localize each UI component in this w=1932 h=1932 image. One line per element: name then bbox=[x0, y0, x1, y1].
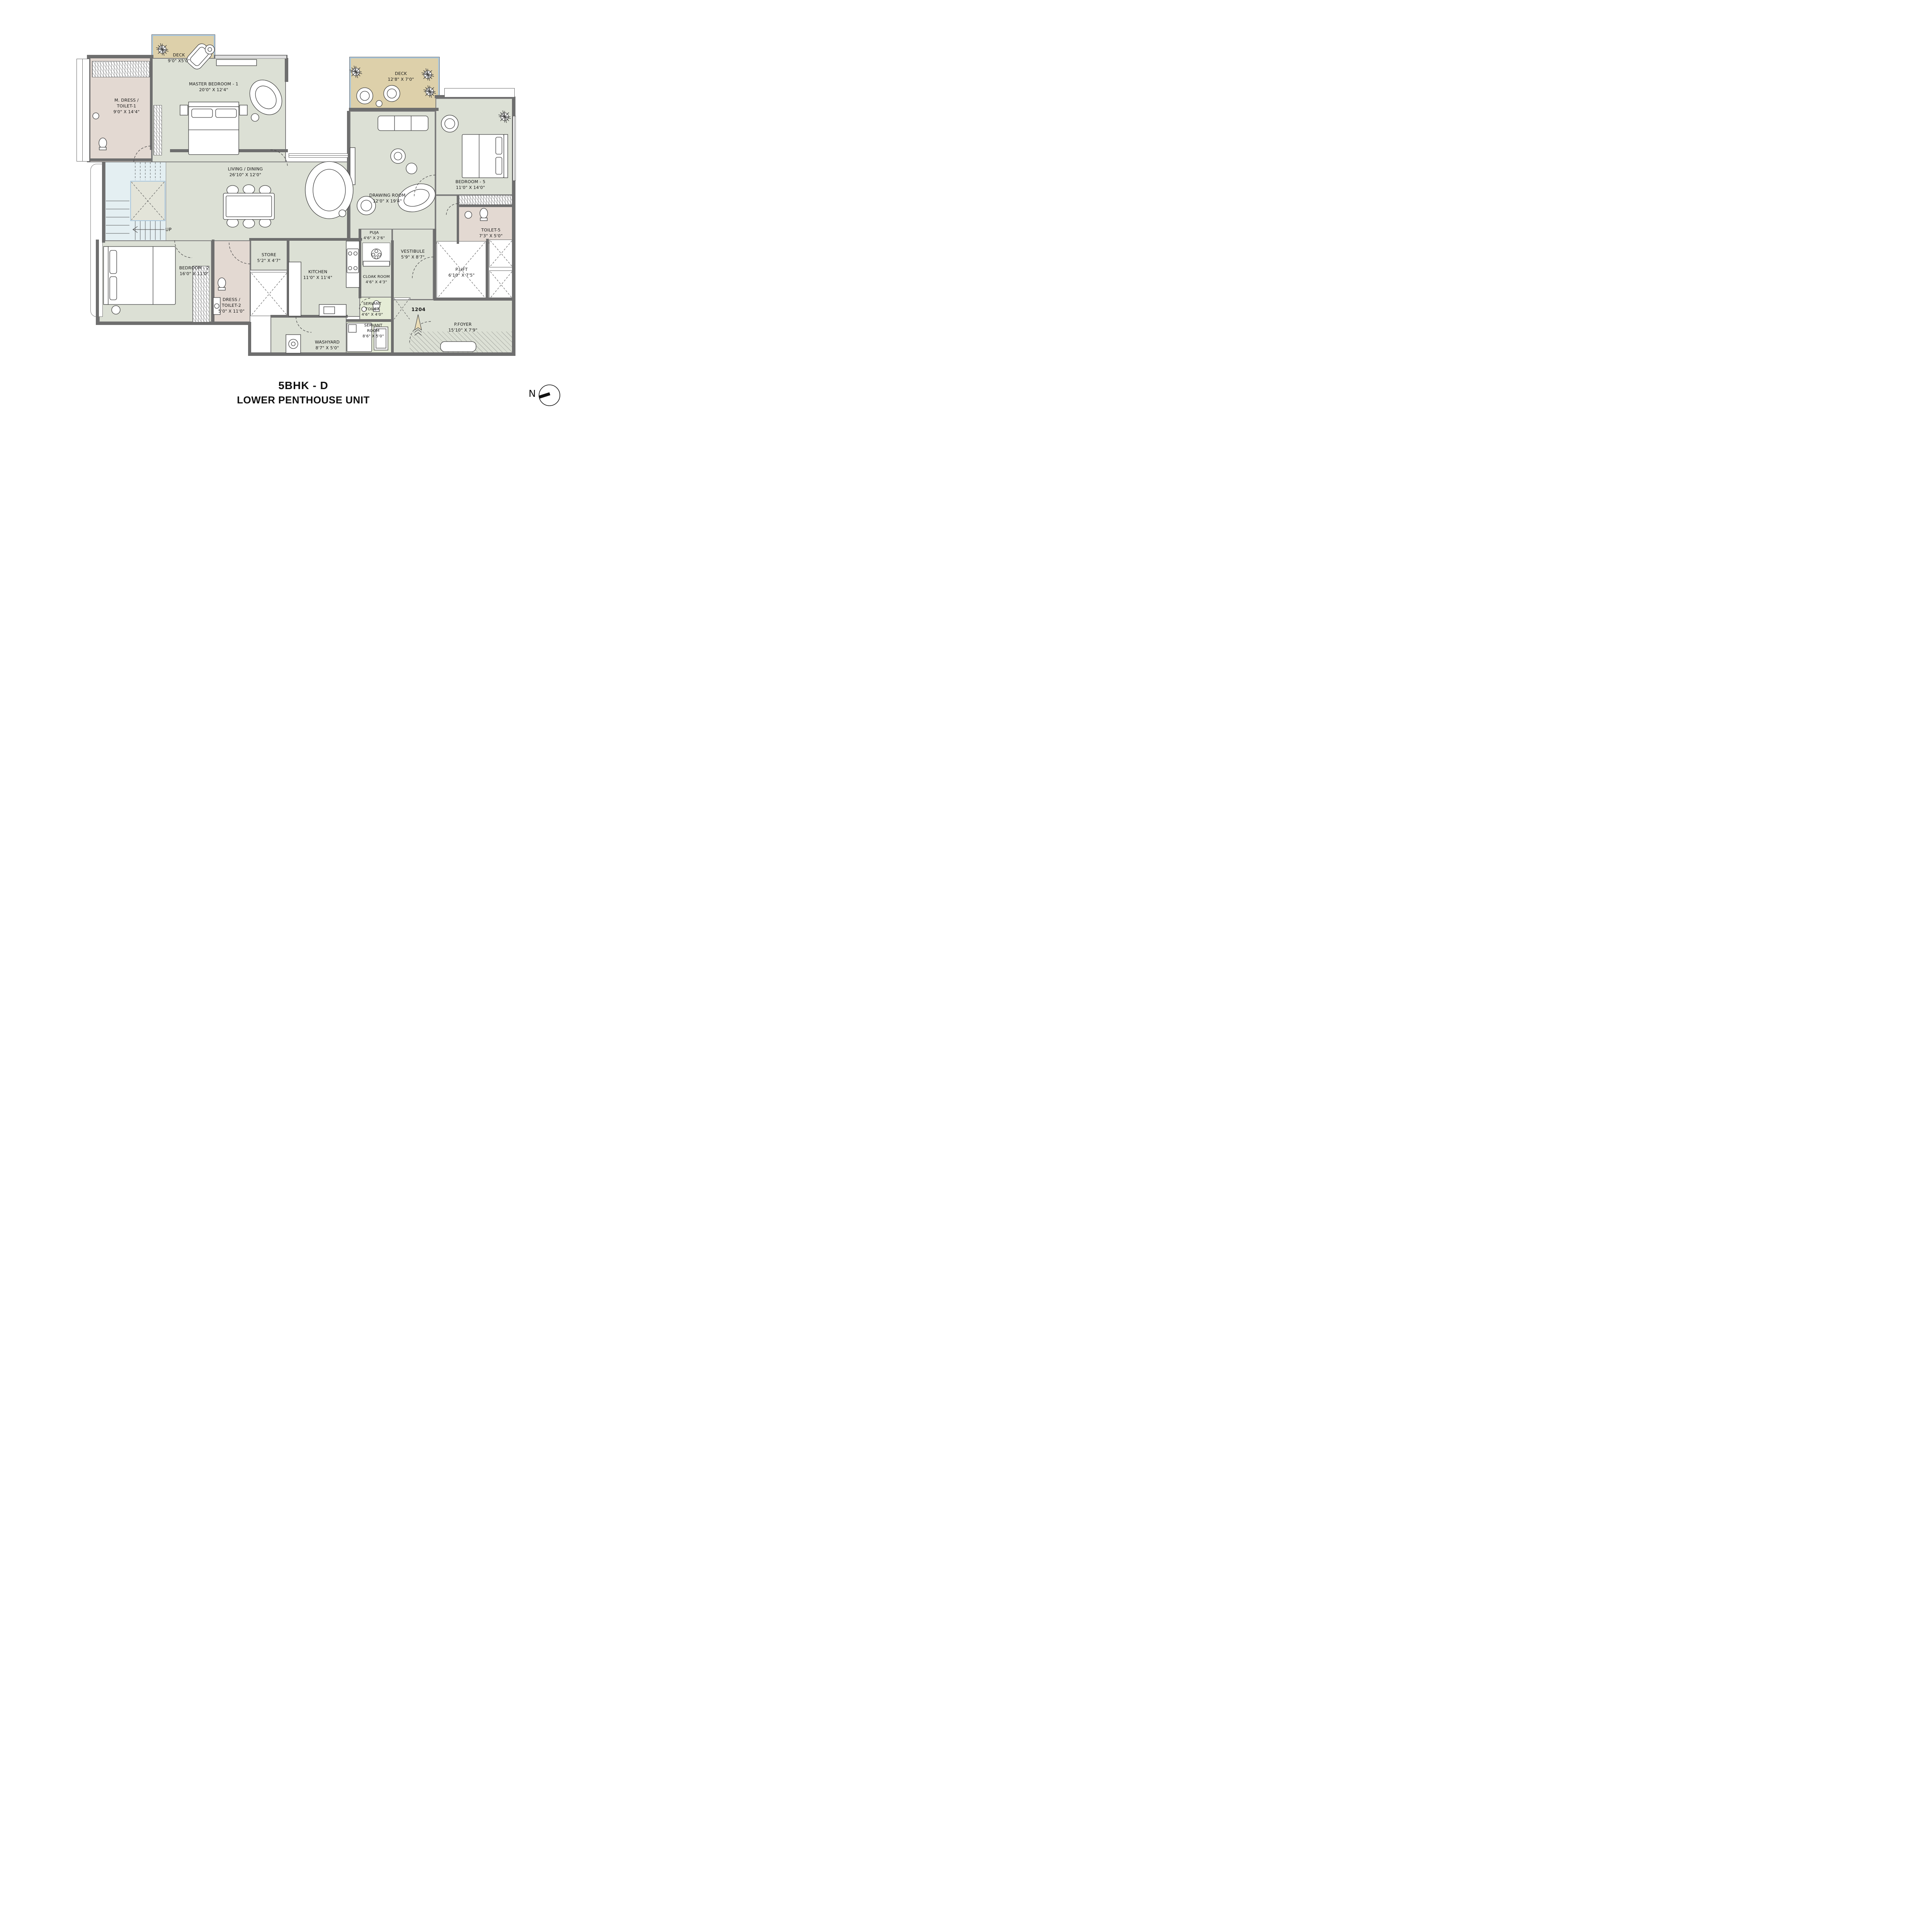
wall-segment bbox=[486, 239, 489, 300]
label-deck-2: DECK 12'8" X 7'0" bbox=[369, 71, 433, 82]
wall-segment bbox=[347, 111, 350, 240]
wall-segment bbox=[249, 238, 362, 241]
room-dims: 8'7" X 5'0" bbox=[303, 345, 352, 351]
room-name: TOILET-2 bbox=[210, 303, 253, 308]
wall-segment bbox=[457, 195, 459, 244]
room-name: TOILET bbox=[354, 307, 391, 312]
room-dims: 4'6" X 2'6" bbox=[358, 236, 391, 241]
up-text: UP bbox=[165, 227, 181, 233]
room-dims: 16'0" X 11'0" bbox=[158, 271, 230, 277]
wall-segment bbox=[349, 108, 439, 111]
room-name: TOILET-5 bbox=[467, 227, 515, 233]
wall-segment bbox=[102, 162, 105, 243]
wall-segment bbox=[248, 322, 251, 356]
wall-segment bbox=[458, 204, 515, 207]
label-washyard: WASHYARD 8'7" X 5'0" bbox=[303, 339, 352, 351]
room-dims: 4'6" X 4'3" bbox=[357, 280, 396, 285]
window bbox=[513, 116, 516, 181]
unit-subtitle: LOWER PENTHOUSE UNIT bbox=[185, 394, 421, 406]
room-master-bedroom bbox=[152, 58, 286, 162]
wall-segment bbox=[287, 240, 289, 318]
label-master-bedroom: MASTER BEDROOM - 1 20'0" X 12'4" bbox=[173, 81, 254, 93]
service-shaft-b bbox=[489, 270, 513, 299]
room-dims: 12'8" X 7'0" bbox=[369, 77, 433, 82]
room-name: MASTER BEDROOM - 1 bbox=[173, 81, 254, 87]
wall-segment bbox=[346, 319, 392, 322]
room-dims: 5'0" X 11'0" bbox=[210, 308, 253, 314]
wall-segment bbox=[170, 149, 288, 152]
room-name: DRAWING ROOM bbox=[348, 192, 427, 198]
wall-segment bbox=[90, 158, 152, 161]
room-name: CLOAK ROOM bbox=[357, 274, 396, 280]
stair-void bbox=[130, 181, 165, 221]
label-toilet-5: TOILET-5 7'3" X 5'0" bbox=[467, 227, 515, 239]
room-dims: 12'0" X 19'4" bbox=[348, 198, 427, 204]
window-ledge bbox=[77, 59, 90, 162]
label-drawing-room: DRAWING ROOM 12'0" X 19'4" bbox=[348, 192, 427, 204]
room-name: KITCHEN bbox=[294, 269, 342, 275]
label-dress-toilet-2: DRESS / TOILET-2 5'0" X 11'0" bbox=[210, 297, 253, 315]
room-dims: 4'6" X 4'0" bbox=[354, 312, 391, 318]
entry-hatch-band bbox=[410, 332, 514, 353]
unit-type: 5BHK - D bbox=[185, 379, 421, 392]
room-name: TOILET-1 bbox=[97, 103, 156, 109]
room-name: M. DRESS / bbox=[97, 97, 156, 103]
label-p-lift: P.LIFT 6'10" X 7'5" bbox=[437, 267, 486, 278]
window bbox=[215, 55, 287, 59]
wall-segment bbox=[435, 298, 515, 301]
label-servant-toilet: SERVANT TOILET 4'6" X 4'0" bbox=[354, 301, 391, 317]
puja-platform bbox=[362, 243, 390, 265]
room-dims: 20'0" X 12'4" bbox=[173, 87, 254, 93]
plan-title: 5BHK - D LOWER PENTHOUSE UNIT bbox=[185, 379, 421, 406]
room-name: ROOM bbox=[354, 328, 393, 334]
room-deck-2 bbox=[350, 57, 439, 111]
wall-segment bbox=[96, 322, 250, 325]
balcony-parapet bbox=[444, 88, 515, 97]
unit-number: 1204 bbox=[409, 306, 428, 313]
wall-segment bbox=[285, 58, 288, 82]
room-dims: 15'10" X 7'9" bbox=[438, 327, 488, 333]
room-name: STORE bbox=[249, 252, 289, 258]
room-name: P.LIFT bbox=[437, 267, 486, 272]
room-name: BEDROOM - 2 bbox=[158, 265, 230, 271]
label-servant-room: SERVANT ROOM 8'6" X 5'0" bbox=[354, 323, 393, 339]
label-bedroom-2: BEDROOM - 2 16'0" X 11'0" bbox=[158, 265, 230, 277]
label-p-foyer: P.FOYER 15'10" X 7'9" bbox=[438, 321, 488, 333]
room-dims: 9'0" X 14'4" bbox=[97, 109, 156, 115]
label-living-dining: LIVING / DINING 26'10" X 12'0" bbox=[205, 166, 286, 178]
room-dims: 6'10" X 7'5" bbox=[437, 272, 486, 278]
room-name: SERVANT bbox=[354, 323, 393, 328]
room-name: BEDROOM - 5 bbox=[435, 179, 506, 185]
north-label: N bbox=[529, 388, 536, 399]
room-dims: 5'9" X 8'7" bbox=[389, 254, 437, 260]
room-dims: 7'3" X 5'0" bbox=[467, 233, 515, 239]
room-name: DRESS / bbox=[210, 297, 253, 303]
stairs-up-label: UP bbox=[165, 227, 181, 233]
north-indicator: N bbox=[526, 383, 576, 410]
room-name: SERVANT bbox=[354, 301, 391, 307]
room-vestibule bbox=[392, 229, 434, 300]
label-kitchen: KITCHEN 11'0" X 11'4" bbox=[294, 269, 342, 281]
label-puja: PUJA 4'6" X 2'6" bbox=[358, 230, 391, 241]
wardrobe-m-dress bbox=[92, 61, 150, 77]
label-store: STORE 5'2" X 4'7" bbox=[249, 252, 289, 264]
label-bedroom-5: BEDROOM - 5 11'0" X 14'0" bbox=[435, 179, 506, 190]
label-cloak-room: CLOAK ROOM 4'6" X 4'3" bbox=[357, 274, 396, 285]
wall-segment bbox=[270, 315, 348, 318]
window bbox=[289, 153, 348, 158]
room-name: LIVING / DINING bbox=[205, 166, 286, 172]
wall-segment bbox=[434, 229, 436, 301]
room-name: P.FOYER bbox=[438, 321, 488, 327]
room-dims: 8'6" X 5'0" bbox=[354, 334, 393, 339]
store-shaft bbox=[250, 272, 288, 316]
room-name: DECK bbox=[369, 71, 433, 77]
bedroom-5-lobby bbox=[435, 195, 459, 243]
service-shaft-a bbox=[489, 240, 513, 267]
unit-number-text: 1204 bbox=[409, 306, 428, 313]
label-m-dress-toilet: M. DRESS / TOILET-1 9'0" X 14'4" bbox=[97, 97, 156, 115]
label-deck-1: DECK 9'0" X5'0" bbox=[151, 52, 207, 64]
wall-segment bbox=[248, 352, 515, 356]
floor-plan: DECK 9'0" X5'0" MASTER BEDROOM - 1 20'0"… bbox=[0, 0, 606, 417]
room-name: VESTIBULE bbox=[389, 248, 437, 254]
room-name: WASHYARD bbox=[303, 339, 352, 345]
room-drawing-room bbox=[350, 111, 435, 240]
room-dims: 11'0" X 14'0" bbox=[435, 185, 506, 190]
room-dims: 26'10" X 12'0" bbox=[205, 172, 286, 178]
room-dims: 5'2" X 4'7" bbox=[249, 258, 289, 264]
room-dims: 11'0" X 11'4" bbox=[294, 275, 342, 281]
room-dims: 9'0" X5'0" bbox=[151, 58, 207, 64]
wall-segment bbox=[87, 55, 153, 58]
wall-segment bbox=[96, 240, 99, 325]
room-name: DECK bbox=[151, 52, 207, 58]
room-name: PUJA bbox=[358, 230, 391, 236]
label-vestibule: VESTIBULE 5'9" X 8'7" bbox=[389, 248, 437, 260]
